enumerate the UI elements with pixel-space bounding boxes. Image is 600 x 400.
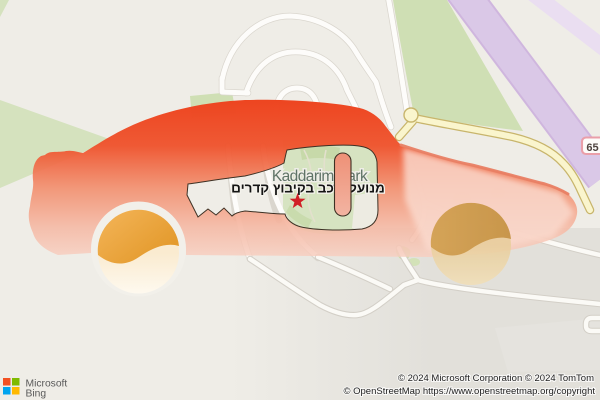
svg-text:65: 65 xyxy=(586,142,598,154)
svg-text:© 2024 Microsoft Corporation ©: © 2024 Microsoft Corporation © 2024 TomT… xyxy=(398,373,594,384)
svg-text:© OpenStreetMap https://www.op: © OpenStreetMap https://www.openstreetma… xyxy=(344,386,596,397)
svg-text:Bing: Bing xyxy=(26,389,47,400)
svg-text:מנועלן רכב בקיבוץ קדרים: מנועלן רכב בקיבוץ קדרים xyxy=(231,181,385,196)
